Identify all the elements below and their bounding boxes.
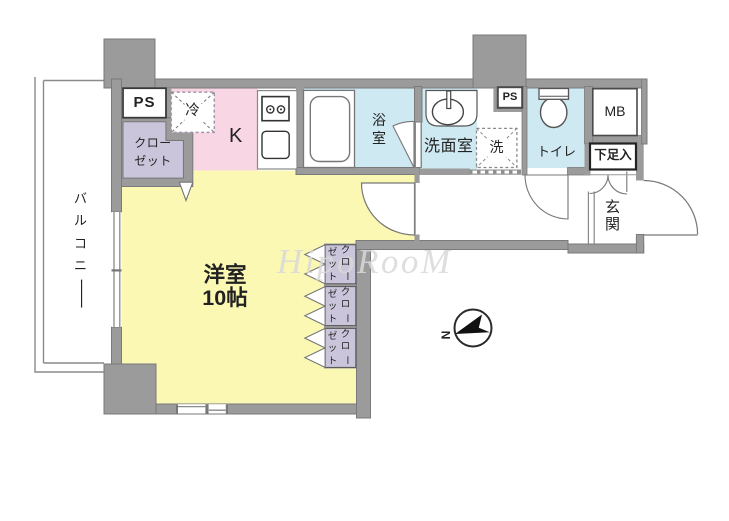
svg-text:N: N <box>439 331 453 340</box>
svg-text:HipoRooM: HipoRooM <box>276 242 453 281</box>
